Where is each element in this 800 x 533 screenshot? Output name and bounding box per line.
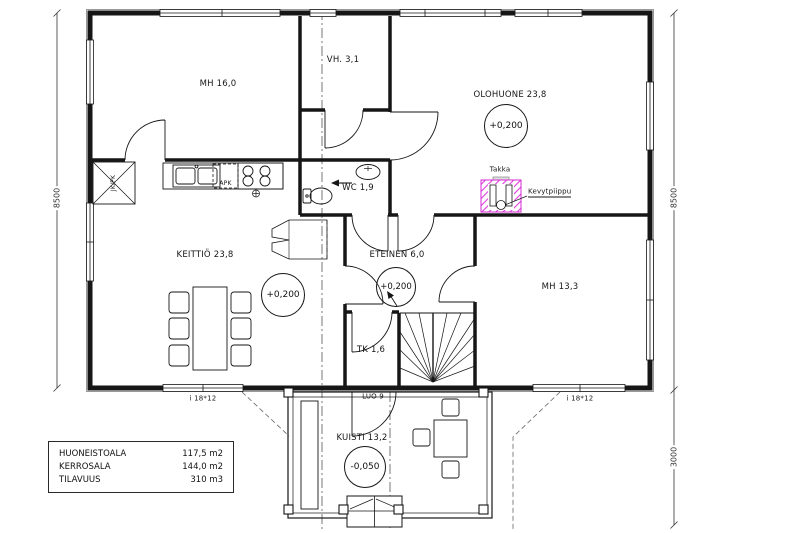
info-value: 310 m3 (190, 475, 223, 485)
room-label-olohuone: OLOHUONE 23,8 (473, 91, 546, 100)
room-label-mh13: MH 13,3 (542, 283, 579, 292)
info-label: HUONEISTOALA (59, 449, 126, 459)
floor-plan-page: MH 16,0 VH. 3,1 OLOHUONE 23,8 KEITTIÖ 23… (0, 0, 800, 533)
level-marker-eteinen: +0,200 (376, 267, 416, 307)
level-marker-keittio: +0,200 (261, 273, 305, 317)
info-row: TILAVUUS 310 m3 (59, 475, 223, 485)
exterior-walls (90, 13, 650, 388)
area-info-table: HUONEISTOALA 117,5 m2 KERROSALA 144,0 m2… (48, 441, 234, 493)
room-label-wc: WC 1,9 (342, 184, 374, 193)
fireplace (481, 177, 527, 212)
door-label-luo: LUO 9 (362, 394, 384, 401)
windows (87, 10, 654, 392)
level-marker-olohuone: +0,200 (484, 104, 528, 148)
dim-left-8500: 8500 (53, 186, 62, 210)
info-label: KERROSALA (59, 462, 111, 472)
dim-right-8500: 8500 (670, 186, 679, 210)
room-label-vh: VH. 3,1 (327, 56, 359, 65)
window-label-right: i 18*12 (567, 396, 594, 403)
info-row: KERROSALA 144,0 m2 (59, 462, 223, 472)
interior-walls (90, 16, 650, 388)
fireplace-label: Takka (490, 167, 511, 174)
porch (284, 388, 492, 527)
info-value: 144,0 m2 (182, 462, 223, 472)
level-marker-kuisti: -0,050 (344, 446, 386, 488)
dim-right-3000: 3000 (670, 445, 679, 469)
room-label-keittio: KEITTIÖ 23,8 (177, 251, 234, 260)
exterior-cladding-line (87, 10, 654, 392)
room-label-tk: TK 1,6 (357, 346, 385, 355)
room-label-mh16: MH 16,0 (200, 80, 237, 89)
room-label-eteinen: ETEINEN 6,0 (370, 251, 425, 260)
info-label: TILAVUUS (59, 475, 101, 485)
dining-set (169, 287, 251, 370)
dishwasher-label: APK (219, 181, 231, 187)
kitchen-bench (272, 220, 327, 259)
info-row: HUONEISTOALA 117,5 m2 (59, 449, 223, 459)
room-label-kuisti: KUISTI 13,2 (337, 434, 388, 443)
window-label-left: i 18*12 (190, 396, 217, 403)
stairs (400, 313, 475, 388)
info-value: 117,5 m2 (182, 449, 223, 459)
chimney-label: Kevytpiippu (528, 189, 571, 198)
fridge-label: JK/PK (111, 175, 117, 191)
